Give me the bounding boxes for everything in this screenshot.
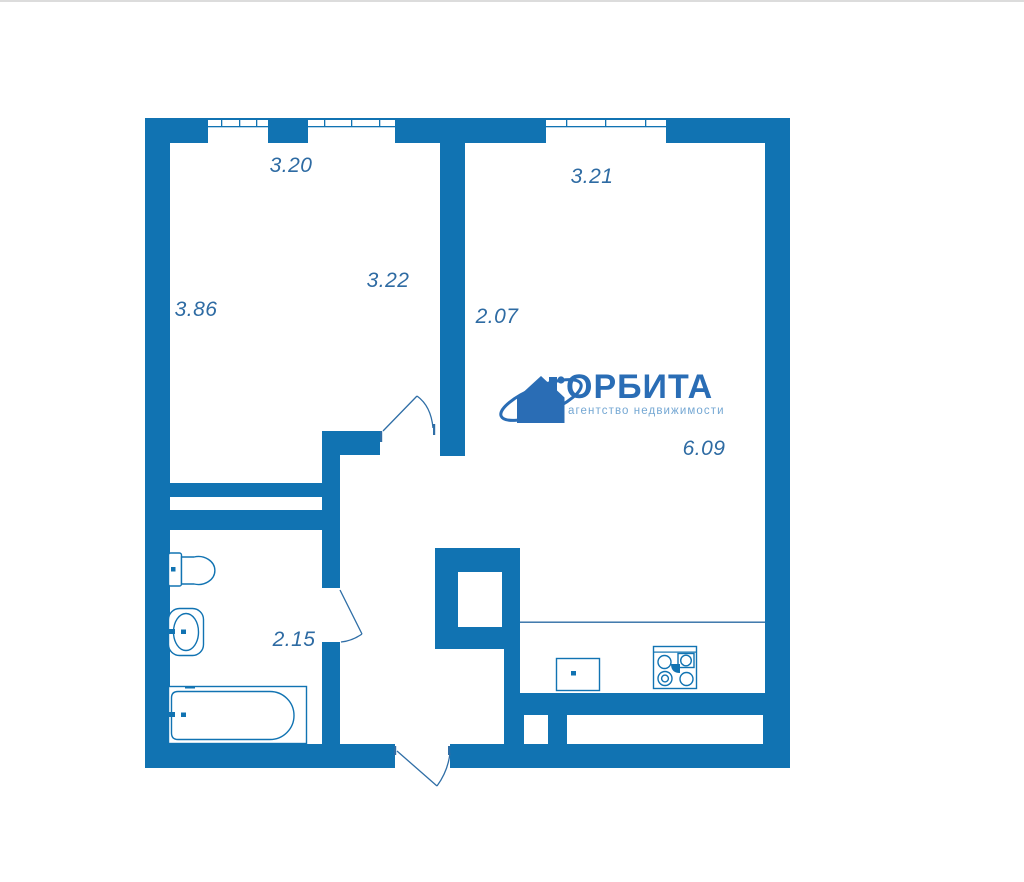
orbit-dot xyxy=(557,376,564,383)
sink-faucet-dot xyxy=(181,630,186,635)
kitchen-sink-fixture xyxy=(557,659,600,691)
window-3-tick xyxy=(566,120,567,127)
dimension-living-height: 3.86 xyxy=(175,298,218,322)
bathroom-sink-fixture xyxy=(169,609,204,656)
entrance-door-swing xyxy=(437,753,450,786)
entrance-door-jamb xyxy=(448,746,450,755)
kitchen-counter-line xyxy=(520,622,765,623)
dimension-living-inner: 3.22 xyxy=(367,269,410,293)
bathtub-fixture xyxy=(169,686,307,744)
living-room-door-jamb xyxy=(433,424,435,435)
entrance-door-jamb xyxy=(394,746,396,755)
toilet-fixture xyxy=(169,553,215,586)
window-3-tick xyxy=(605,120,606,127)
wall-living-door-stub xyxy=(322,431,380,455)
sink-faucet xyxy=(169,629,175,634)
wall-bathroom-cabin-top xyxy=(168,510,322,530)
bathtub-faucet-dot xyxy=(181,713,186,718)
living-room-door-swing xyxy=(417,396,433,428)
dimension-bathroom-width: 2.15 xyxy=(273,628,316,652)
window-1-tick xyxy=(256,120,257,127)
wall-between-rooms xyxy=(440,143,465,456)
dimension-living-width: 3.20 xyxy=(270,154,313,178)
wall-outer-right xyxy=(765,143,790,768)
toilet-flush xyxy=(171,567,176,572)
window-2-tick xyxy=(379,120,380,127)
bathroom-door-swing xyxy=(341,634,362,642)
window-3-tick xyxy=(645,120,646,127)
bathtub-faucet xyxy=(169,712,175,717)
wall-kitchen-bottom xyxy=(504,693,765,715)
dimension-kitchen-width: 3.21 xyxy=(571,165,614,189)
wall-outer-left xyxy=(145,143,170,768)
entrance-door-leaf xyxy=(397,751,437,786)
kitchen-sink-outer xyxy=(557,659,600,691)
bathroom-door-leaf xyxy=(340,590,362,634)
window-2-tick xyxy=(324,120,325,127)
bathtub-mark xyxy=(185,686,195,689)
dimension-kitchen-height: 2.07 xyxy=(476,305,519,329)
window-1-tick xyxy=(221,120,222,127)
brand-tagline: агентство недвижимости xyxy=(568,406,725,418)
wall-below-shaft xyxy=(504,649,520,693)
window-1-tick xyxy=(239,120,240,127)
living-room-door-jamb xyxy=(380,431,382,442)
window-1-sash-line xyxy=(208,126,268,127)
wall-bathroom-right-lower xyxy=(322,642,340,744)
kitchen-sink-faucet xyxy=(571,671,576,676)
house-icon xyxy=(517,376,565,423)
window-1 xyxy=(208,120,268,143)
loggia-window-band xyxy=(567,715,763,744)
dimension-kitchen-inner: 6.09 xyxy=(683,437,726,461)
stove-fixture xyxy=(654,647,697,689)
brand-name: ОРБИТА xyxy=(566,370,713,404)
loggia-opening-small xyxy=(524,715,548,744)
wall-outer-bottom-right xyxy=(450,744,765,768)
window-2-tick xyxy=(351,120,352,127)
ventilation-shaft-duct xyxy=(458,572,502,627)
living-room-door-leaf xyxy=(383,396,417,431)
bathtub-outer xyxy=(169,687,307,744)
floor-plan-drawing xyxy=(0,0,1024,882)
stove-back-edge xyxy=(654,652,697,653)
wall-bathroom-right-upper xyxy=(322,455,340,588)
floor-plan-page: 3.20 3.21 3.86 3.22 2.07 6.09 2.15 ОРБИТ… xyxy=(0,0,1024,882)
wall-living-bottom xyxy=(168,483,322,497)
toilet-bowl xyxy=(182,556,215,584)
wall-outer-bottom-left xyxy=(170,744,395,768)
